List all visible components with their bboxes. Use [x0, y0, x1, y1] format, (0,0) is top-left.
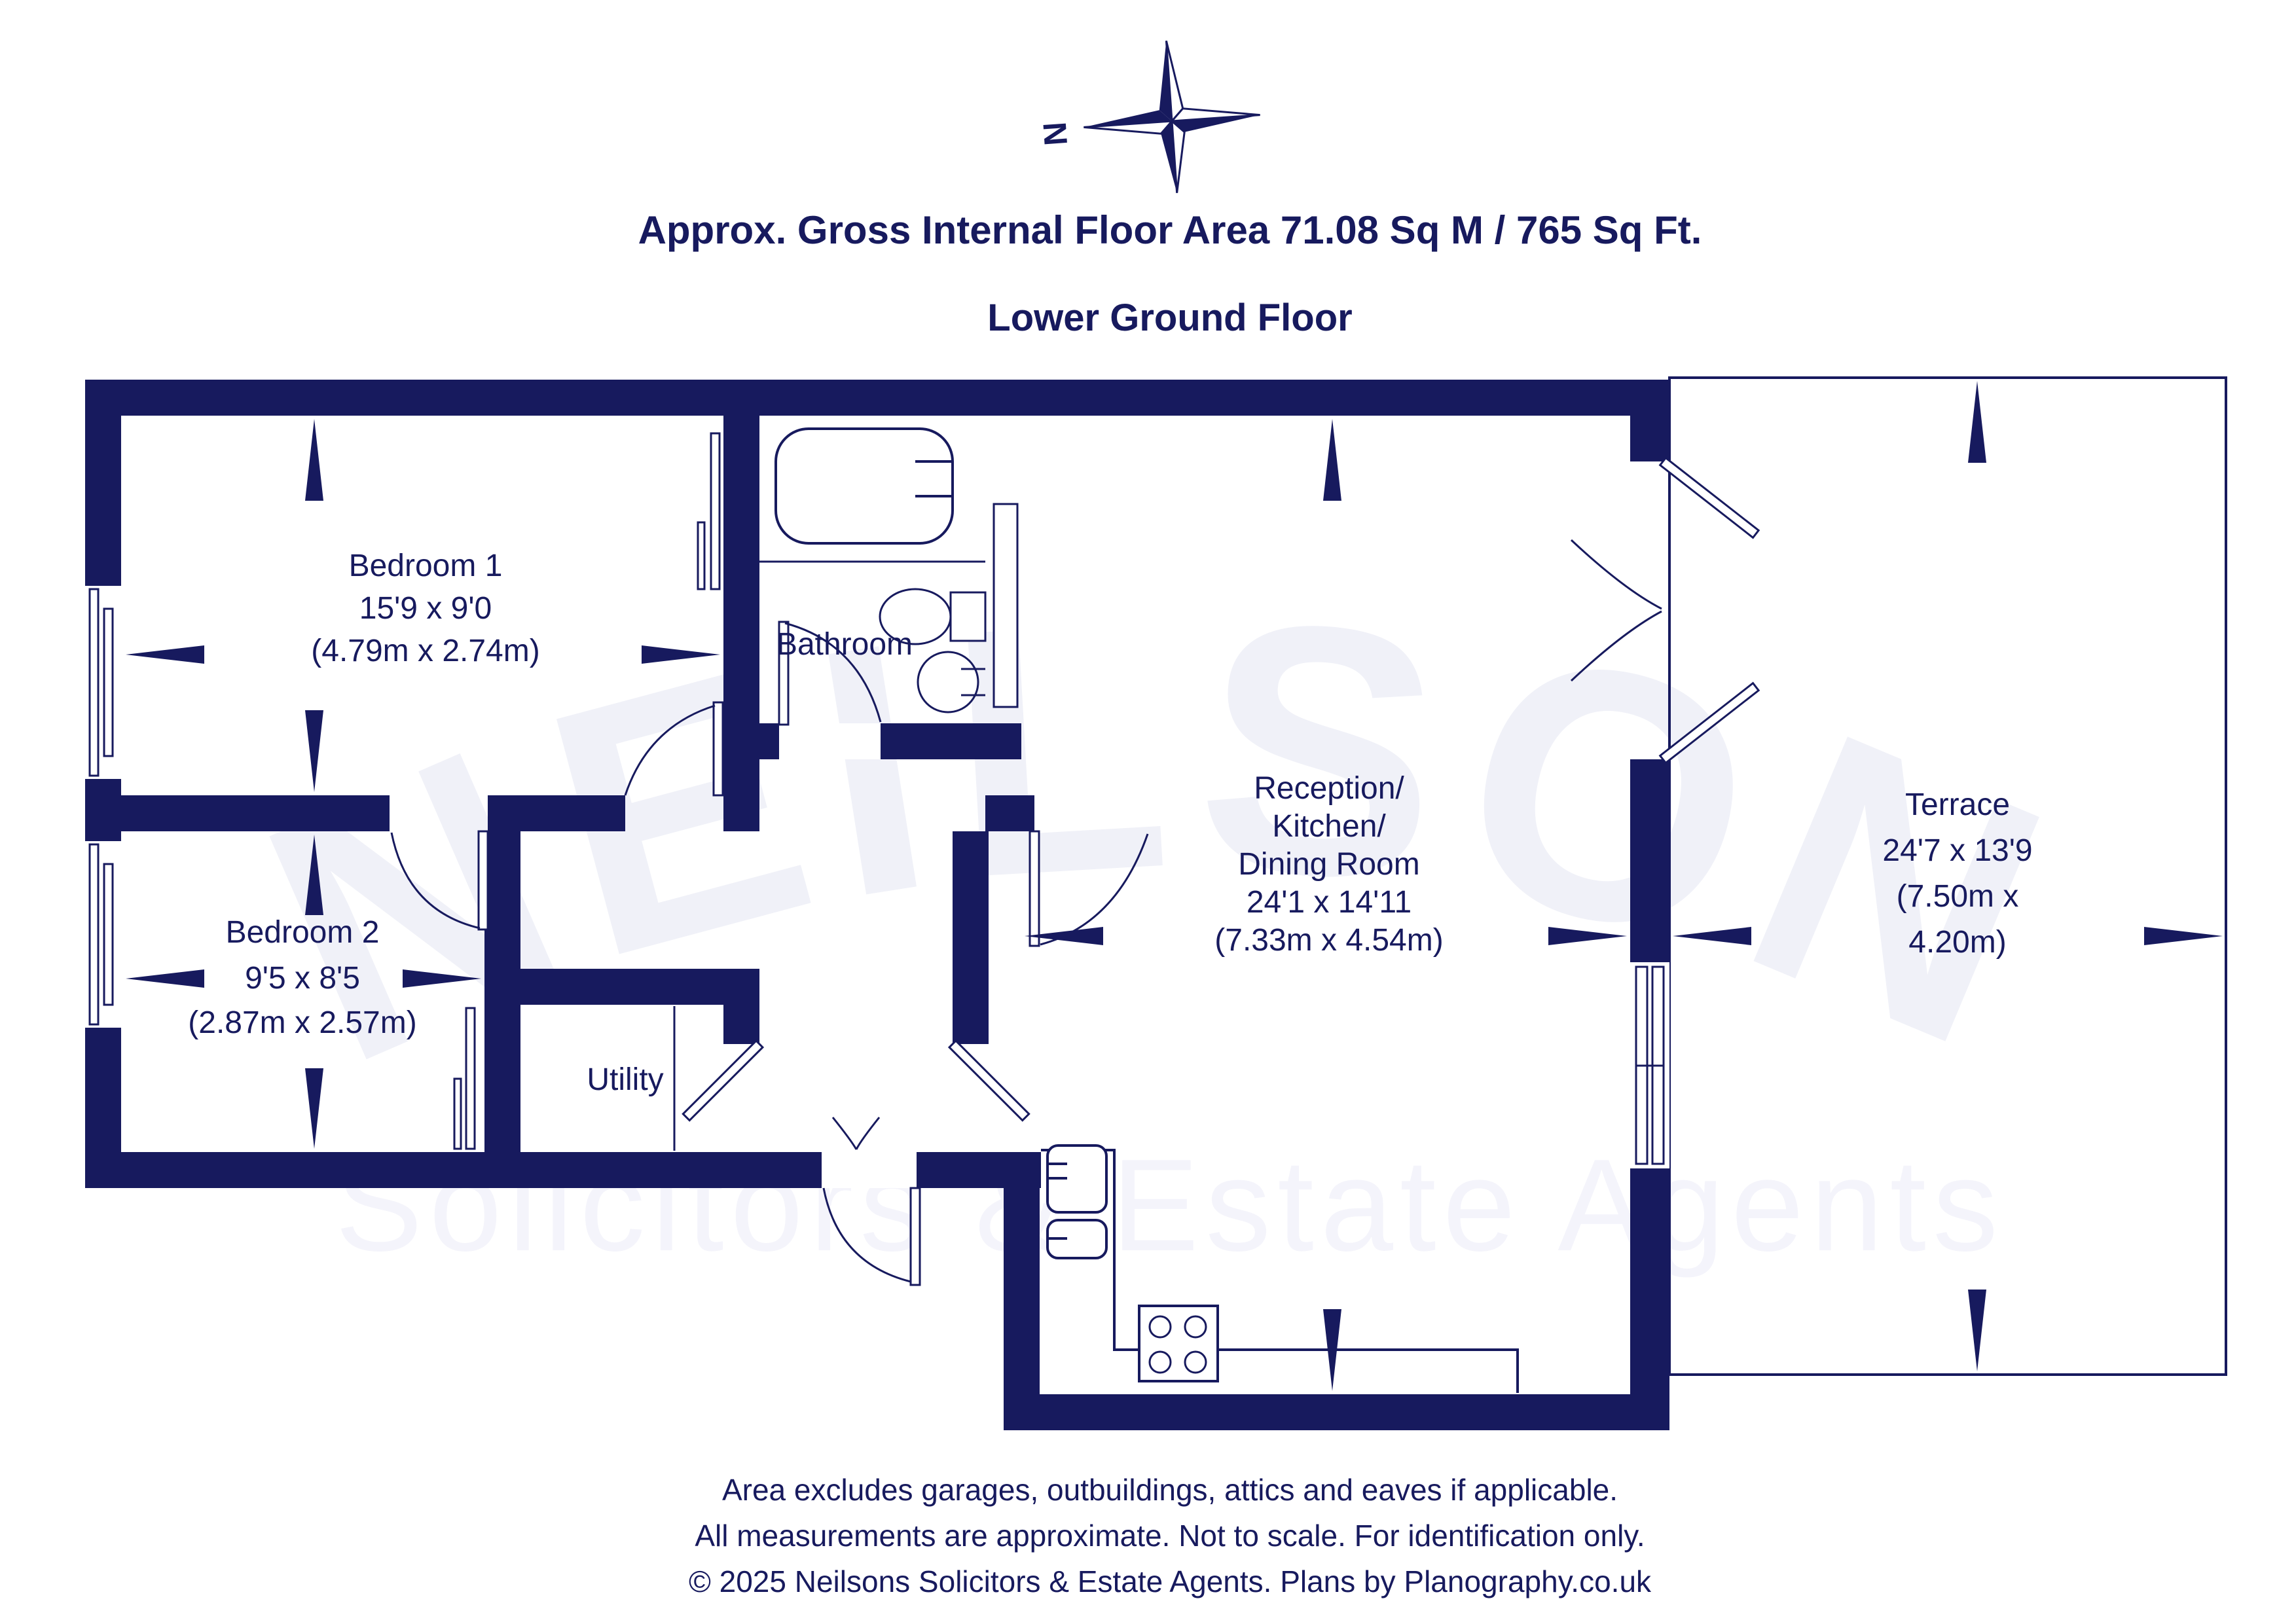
bedroom1-dims-metric: (4.79m x 2.74m) [311, 634, 539, 668]
reception-name-3: Dining Room [1238, 847, 1419, 882]
bedroom2-name: Bedroom 2 [226, 915, 380, 950]
terrace-dims-metric-2: 4.20m) [1908, 925, 2006, 960]
wall-right-middle [1630, 759, 1669, 962]
bedroom1-name: Bedroom 1 [349, 549, 503, 583]
bathroom-wall-recess [994, 504, 1017, 707]
wall-utility-right [723, 969, 759, 1044]
bedroom1-dims-imperial: 15'9 x 9'0 [359, 591, 492, 626]
footer: Area excludes garages, outbuildings, att… [689, 1473, 1652, 1598]
terrace-dims-imperial: 24'7 x 13'9 [1882, 833, 2032, 868]
terrace-dims-metric-1: (7.50m x [1897, 879, 2019, 914]
reception-dims-imperial: 24'1 x 14'11 [1247, 885, 1412, 920]
bedroom1-wardrobe-lines [698, 433, 720, 589]
wall-bed1-bathroom-partition [723, 416, 759, 831]
floorplan-canvas: NEILSONS Solicitors & Estate Agents N Ap… [0, 0, 2296, 1624]
arrow-reception-up [1323, 419, 1341, 501]
wall-reception-stub [985, 795, 1034, 831]
wall-bottom-reception [1004, 1394, 1669, 1430]
bedroom1-window [85, 586, 121, 779]
wall-hall-right [953, 831, 989, 1044]
page-title: Approx. Gross Internal Floor Area 71.08 … [638, 208, 1702, 252]
bedroom1-label: Bedroom 1 15'9 x 9'0 (4.79m x 2.74m) [311, 549, 539, 668]
wall-right-lower [1630, 1168, 1669, 1430]
utility-label: Utility [587, 1062, 663, 1097]
compass-north-label: N [1036, 120, 1074, 147]
bathroom-label: Bathroom [776, 627, 913, 662]
wall-top [85, 380, 1669, 416]
bedroom2-window [85, 841, 121, 1028]
bathroom-door-opening [779, 723, 881, 759]
reception-name-1: Reception/ [1254, 771, 1404, 806]
appliance-icons [1048, 1146, 1106, 1258]
compass-rose: N [1031, 35, 1265, 202]
arrow-bed1-left [126, 645, 204, 664]
footer-disclaimer-1: Area excludes garages, outbuildings, att… [722, 1473, 1618, 1507]
arrow-bed1-up [305, 419, 323, 501]
wall-bed1-bed2-divider-left [121, 795, 390, 831]
bathtub-icon [776, 429, 953, 543]
floor-name: Lower Ground Floor [987, 297, 1352, 339]
wall-kitchen-connector [1004, 1188, 1040, 1398]
reception-window [1630, 962, 1669, 1168]
arrow-bed2-down [305, 1068, 323, 1149]
wall-bed2-right [484, 831, 520, 1152]
arrow-bed2-left [126, 969, 204, 988]
reception-name-2: Kitchen/ [1272, 809, 1386, 844]
wall-bed1-bed2-divider-right [488, 795, 625, 831]
compass-star-icon [1078, 35, 1266, 199]
terrace-name: Terrace [1905, 787, 2010, 822]
footer-copyright: © 2025 Neilsons Solicitors & Estate Agen… [689, 1564, 1652, 1598]
bedroom2-dims-imperial: 9'5 x 8'5 [245, 961, 360, 996]
footer-disclaimer-2: All measurements are approximate. Not to… [695, 1519, 1645, 1553]
hob-icon [1139, 1306, 1218, 1381]
arrow-terrace-down [1968, 1290, 1986, 1371]
arrow-terrace-right [2144, 927, 2223, 945]
wall-right-upper [1630, 380, 1669, 461]
wall-bottom-entrance-right [917, 1152, 1041, 1188]
wall-bottom-left [85, 1152, 822, 1188]
arrow-terrace-up [1968, 381, 1986, 463]
entrance-opening [822, 1152, 917, 1188]
reception-dims-metric: (7.33m x 4.54m) [1214, 923, 1443, 958]
wall-left [85, 380, 121, 1188]
bedroom2-dims-metric: (2.87m x 2.57m) [188, 1005, 416, 1040]
